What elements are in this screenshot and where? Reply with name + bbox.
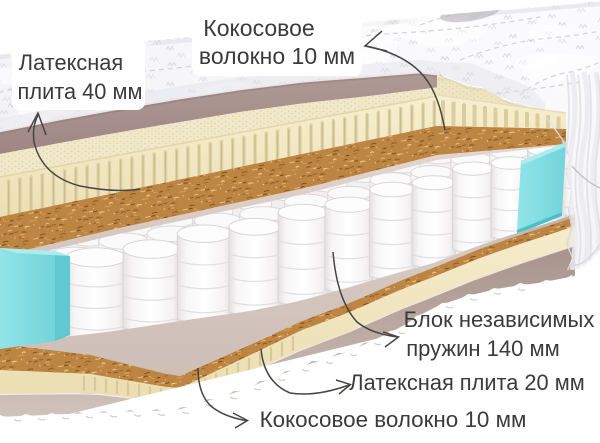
- svg-text:плита 40 мм: плита 40 мм: [18, 79, 143, 104]
- svg-text:Латексная плита 20 мм: Латексная плита 20 мм: [349, 370, 584, 395]
- svg-text:Блок независимых: Блок независимых: [404, 307, 595, 332]
- svg-text:Латексная: Латексная: [19, 50, 123, 75]
- svg-text:Кокосовое волокно 10 мм: Кокосовое волокно 10 мм: [260, 407, 527, 432]
- svg-text:волокно 10 мм: волокно 10 мм: [199, 43, 355, 69]
- svg-text:пружин 140 мм: пружин 140 мм: [406, 336, 559, 361]
- svg-text:Кокосовое: Кокосовое: [203, 15, 314, 41]
